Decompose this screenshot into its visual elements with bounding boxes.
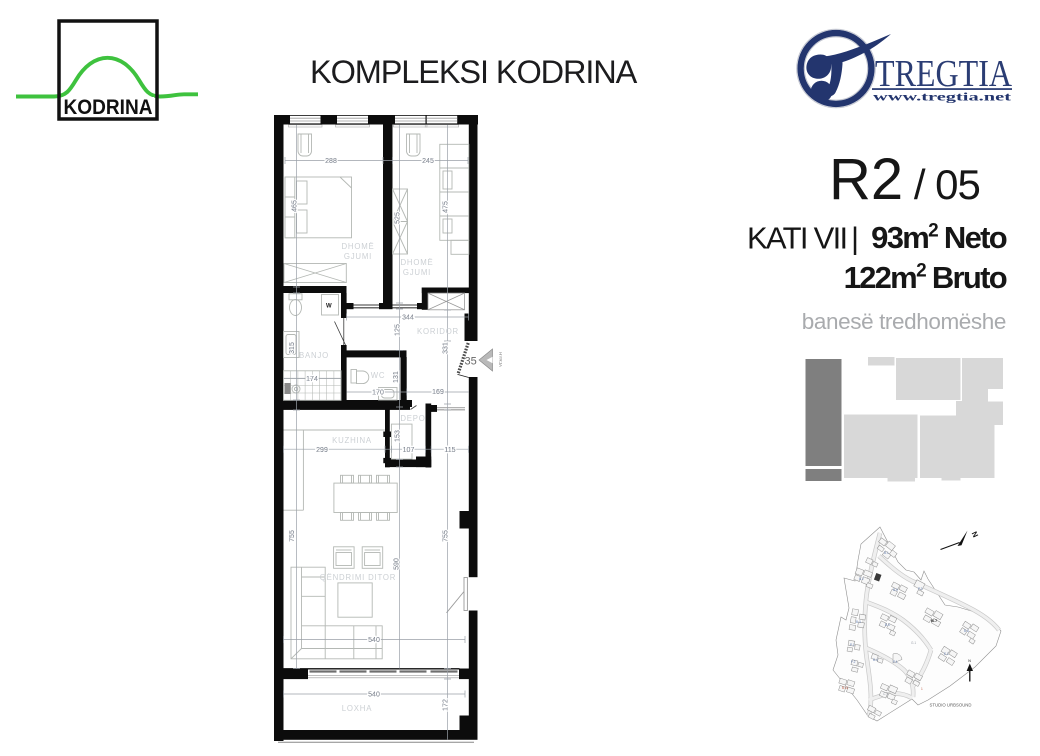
svg-text:35: 35	[465, 356, 477, 368]
svg-text:475: 475	[443, 201, 450, 213]
svg-text:169: 169	[432, 389, 444, 396]
svg-text:115: 115	[444, 447, 455, 454]
svg-text:LOXHA: LOXHA	[342, 704, 372, 713]
svg-text:540: 540	[368, 692, 380, 699]
svg-text:WC: WC	[371, 371, 386, 380]
svg-text:W: W	[326, 304, 332, 310]
svg-text:P.2: P.2	[851, 660, 856, 664]
svg-text:B.8: B.8	[964, 629, 969, 633]
svg-text:525: 525	[395, 212, 402, 224]
svg-text:DHOMË: DHOMË	[400, 258, 433, 267]
svg-text:590: 590	[394, 558, 401, 570]
svg-text:E.1: E.1	[944, 652, 949, 656]
svg-text:245: 245	[422, 158, 434, 165]
svg-text:172: 172	[443, 699, 450, 711]
svg-text:P.3: P.3	[918, 587, 923, 591]
svg-text:G.1: G.1	[911, 641, 916, 645]
svg-text:1: 1	[921, 687, 923, 691]
svg-text:331: 331	[443, 342, 450, 354]
svg-text:BANJO: BANJO	[299, 351, 329, 360]
svg-text:288: 288	[325, 158, 337, 165]
svg-text:153: 153	[395, 430, 402, 442]
svg-text:GJUMI: GJUMI	[403, 268, 431, 277]
svg-text:B.4: B.4	[873, 658, 878, 662]
svg-text:170: 170	[372, 390, 384, 397]
svg-text:755: 755	[289, 530, 296, 542]
svg-text:B.5: B.5	[885, 623, 890, 627]
svg-text:131: 131	[393, 371, 400, 383]
svg-text:344: 344	[402, 315, 414, 322]
svg-text:QËNDRIMI DITOR: QËNDRIMI DITOR	[320, 573, 396, 582]
svg-text:125: 125	[395, 324, 402, 336]
svg-text:www.tregtia.net: www.tregtia.net	[873, 92, 1011, 104]
svg-text:DEPO: DEPO	[400, 414, 425, 423]
svg-text:P.4: P.4	[893, 660, 898, 664]
svg-text:B.7: B.7	[931, 618, 938, 623]
svg-text:174: 174	[306, 376, 318, 383]
svg-text:755: 755	[443, 530, 450, 542]
svg-text:B.1: B.1	[884, 551, 889, 555]
svg-text:299: 299	[316, 447, 328, 454]
svg-text:STUDIO URBSOUND: STUDIO URBSOUND	[930, 703, 972, 709]
svg-text:B.3: B.3	[856, 620, 861, 624]
svg-text:C.1: C.1	[883, 692, 888, 696]
svg-text:315: 315	[289, 342, 296, 354]
svg-text:N: N	[970, 530, 980, 539]
svg-text:KORIDOR: KORIDOR	[417, 327, 459, 336]
svg-text:B.6: B.6	[893, 588, 898, 592]
svg-text:GJUMI: GJUMI	[344, 252, 372, 261]
svg-text:HYRJA: HYRJA	[498, 352, 503, 368]
svg-text:107: 107	[403, 447, 415, 454]
svg-text:540: 540	[368, 637, 380, 644]
svg-text:B.2: B.2	[859, 577, 864, 581]
svg-text:N: N	[968, 659, 971, 663]
svg-text:KODRINA: KODRINA	[64, 96, 153, 119]
svg-text:KUZHINA: KUZHINA	[332, 436, 372, 445]
svg-text:B.11: B.11	[842, 686, 849, 690]
svg-text:DHOMË: DHOMË	[341, 242, 374, 251]
svg-text:465: 465	[292, 200, 299, 212]
svg-text:P.1: P.1	[850, 643, 855, 647]
